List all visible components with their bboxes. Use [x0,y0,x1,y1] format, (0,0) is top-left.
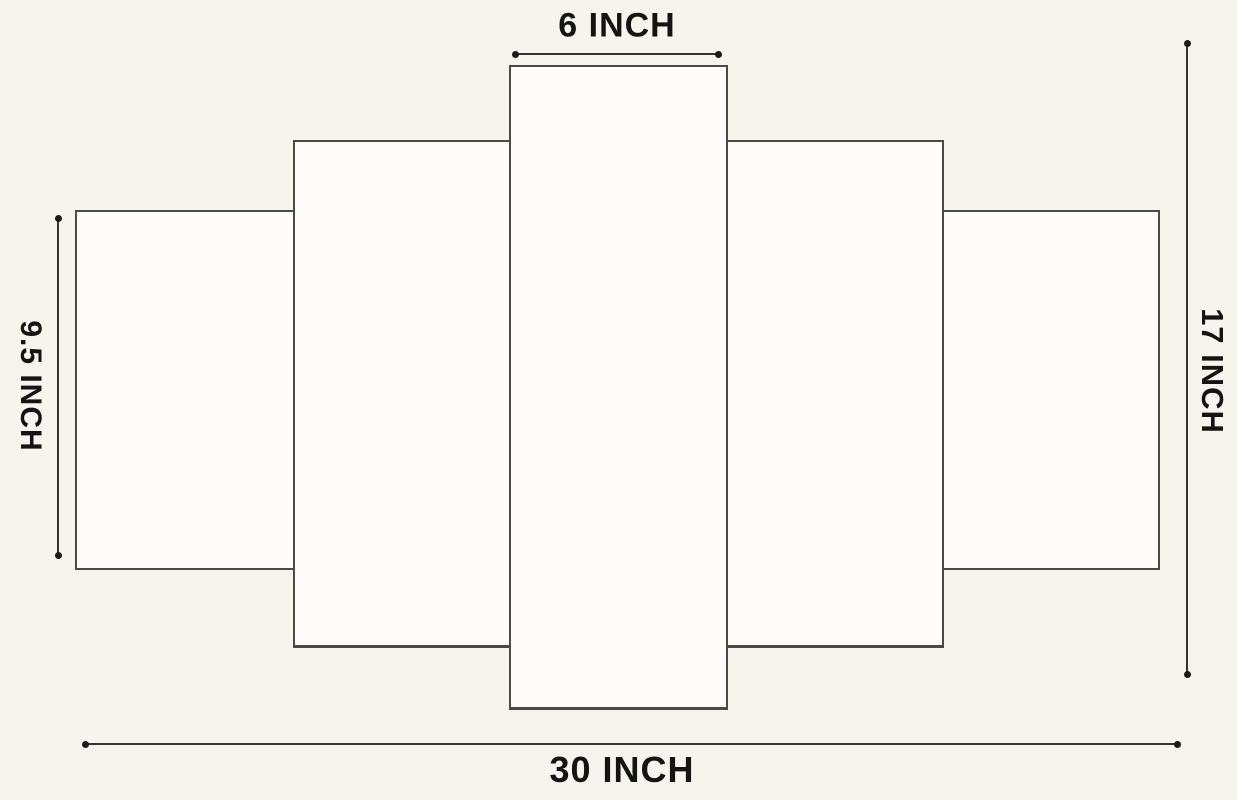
dimension-line-left [57,218,59,556]
right-height-label: 17 INCH [1194,308,1230,434]
dot-endpoint [715,51,722,58]
dimension-line-top [515,53,719,55]
top-width-label: 6 INCH [558,7,675,46]
dot-endpoint [55,215,62,222]
dimension-diagram: 6 INCH 9.5 INCH 17 INCH 30 INCH [0,0,1237,800]
panel-far-left [75,210,295,570]
bottom-width-label: 30 INCH [549,749,694,791]
panel-mid-right [726,140,944,648]
left-height-label: 9.5 INCH [13,320,47,451]
dot-endpoint [1184,40,1191,47]
dimension-line-right [1186,43,1188,675]
dot-endpoint [1174,741,1181,748]
dimension-line-bottom [85,743,1178,745]
panel-far-right [942,210,1160,570]
dot-endpoint [1184,671,1191,678]
dot-endpoint [82,741,89,748]
dot-endpoint [512,51,519,58]
dot-endpoint [55,552,62,559]
panel-mid-left [293,140,511,648]
panel-center [509,65,728,710]
